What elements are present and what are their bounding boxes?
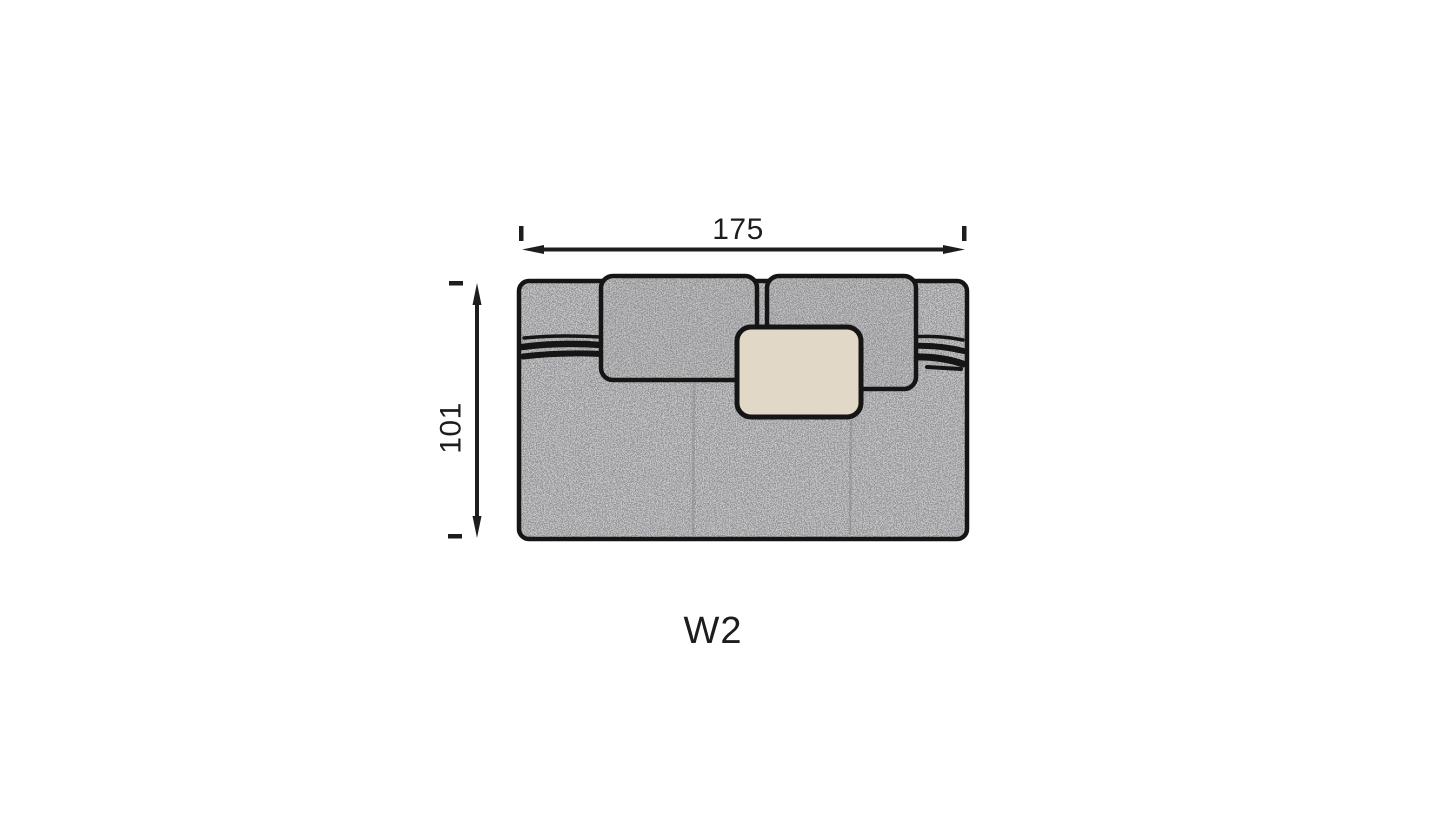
- piping-stroke: [524, 336, 600, 338]
- piping-stroke: [927, 367, 961, 369]
- module-label: W2: [684, 610, 743, 652]
- dimension-depth-marks: 101: [435, 281, 482, 539]
- seat-seam-right: [850, 420, 851, 535]
- width-extension-tick-left: [519, 226, 524, 241]
- dimension-width: 175: [519, 213, 967, 254]
- dimension-depth: 101: [435, 281, 482, 539]
- width-extension-tick-right: [962, 226, 967, 241]
- sofa-module: [519, 276, 967, 539]
- depth-dimension-label: 101: [435, 402, 468, 454]
- piping-stroke: [523, 353, 601, 356]
- depth-extension-tick-bottom: [448, 534, 462, 539]
- page: 175 101: [0, 0, 1445, 813]
- width-dimension-label: 175: [712, 213, 764, 246]
- piping-stroke: [522, 344, 601, 347]
- throw-pillow-fill: [737, 327, 861, 417]
- sofa-dimension-diagram: 175 101: [0, 0, 1445, 813]
- back-cushion-left-fill: [601, 276, 757, 380]
- depth-extension-tick-top: [449, 281, 463, 286]
- seat-seam-left: [693, 384, 694, 535]
